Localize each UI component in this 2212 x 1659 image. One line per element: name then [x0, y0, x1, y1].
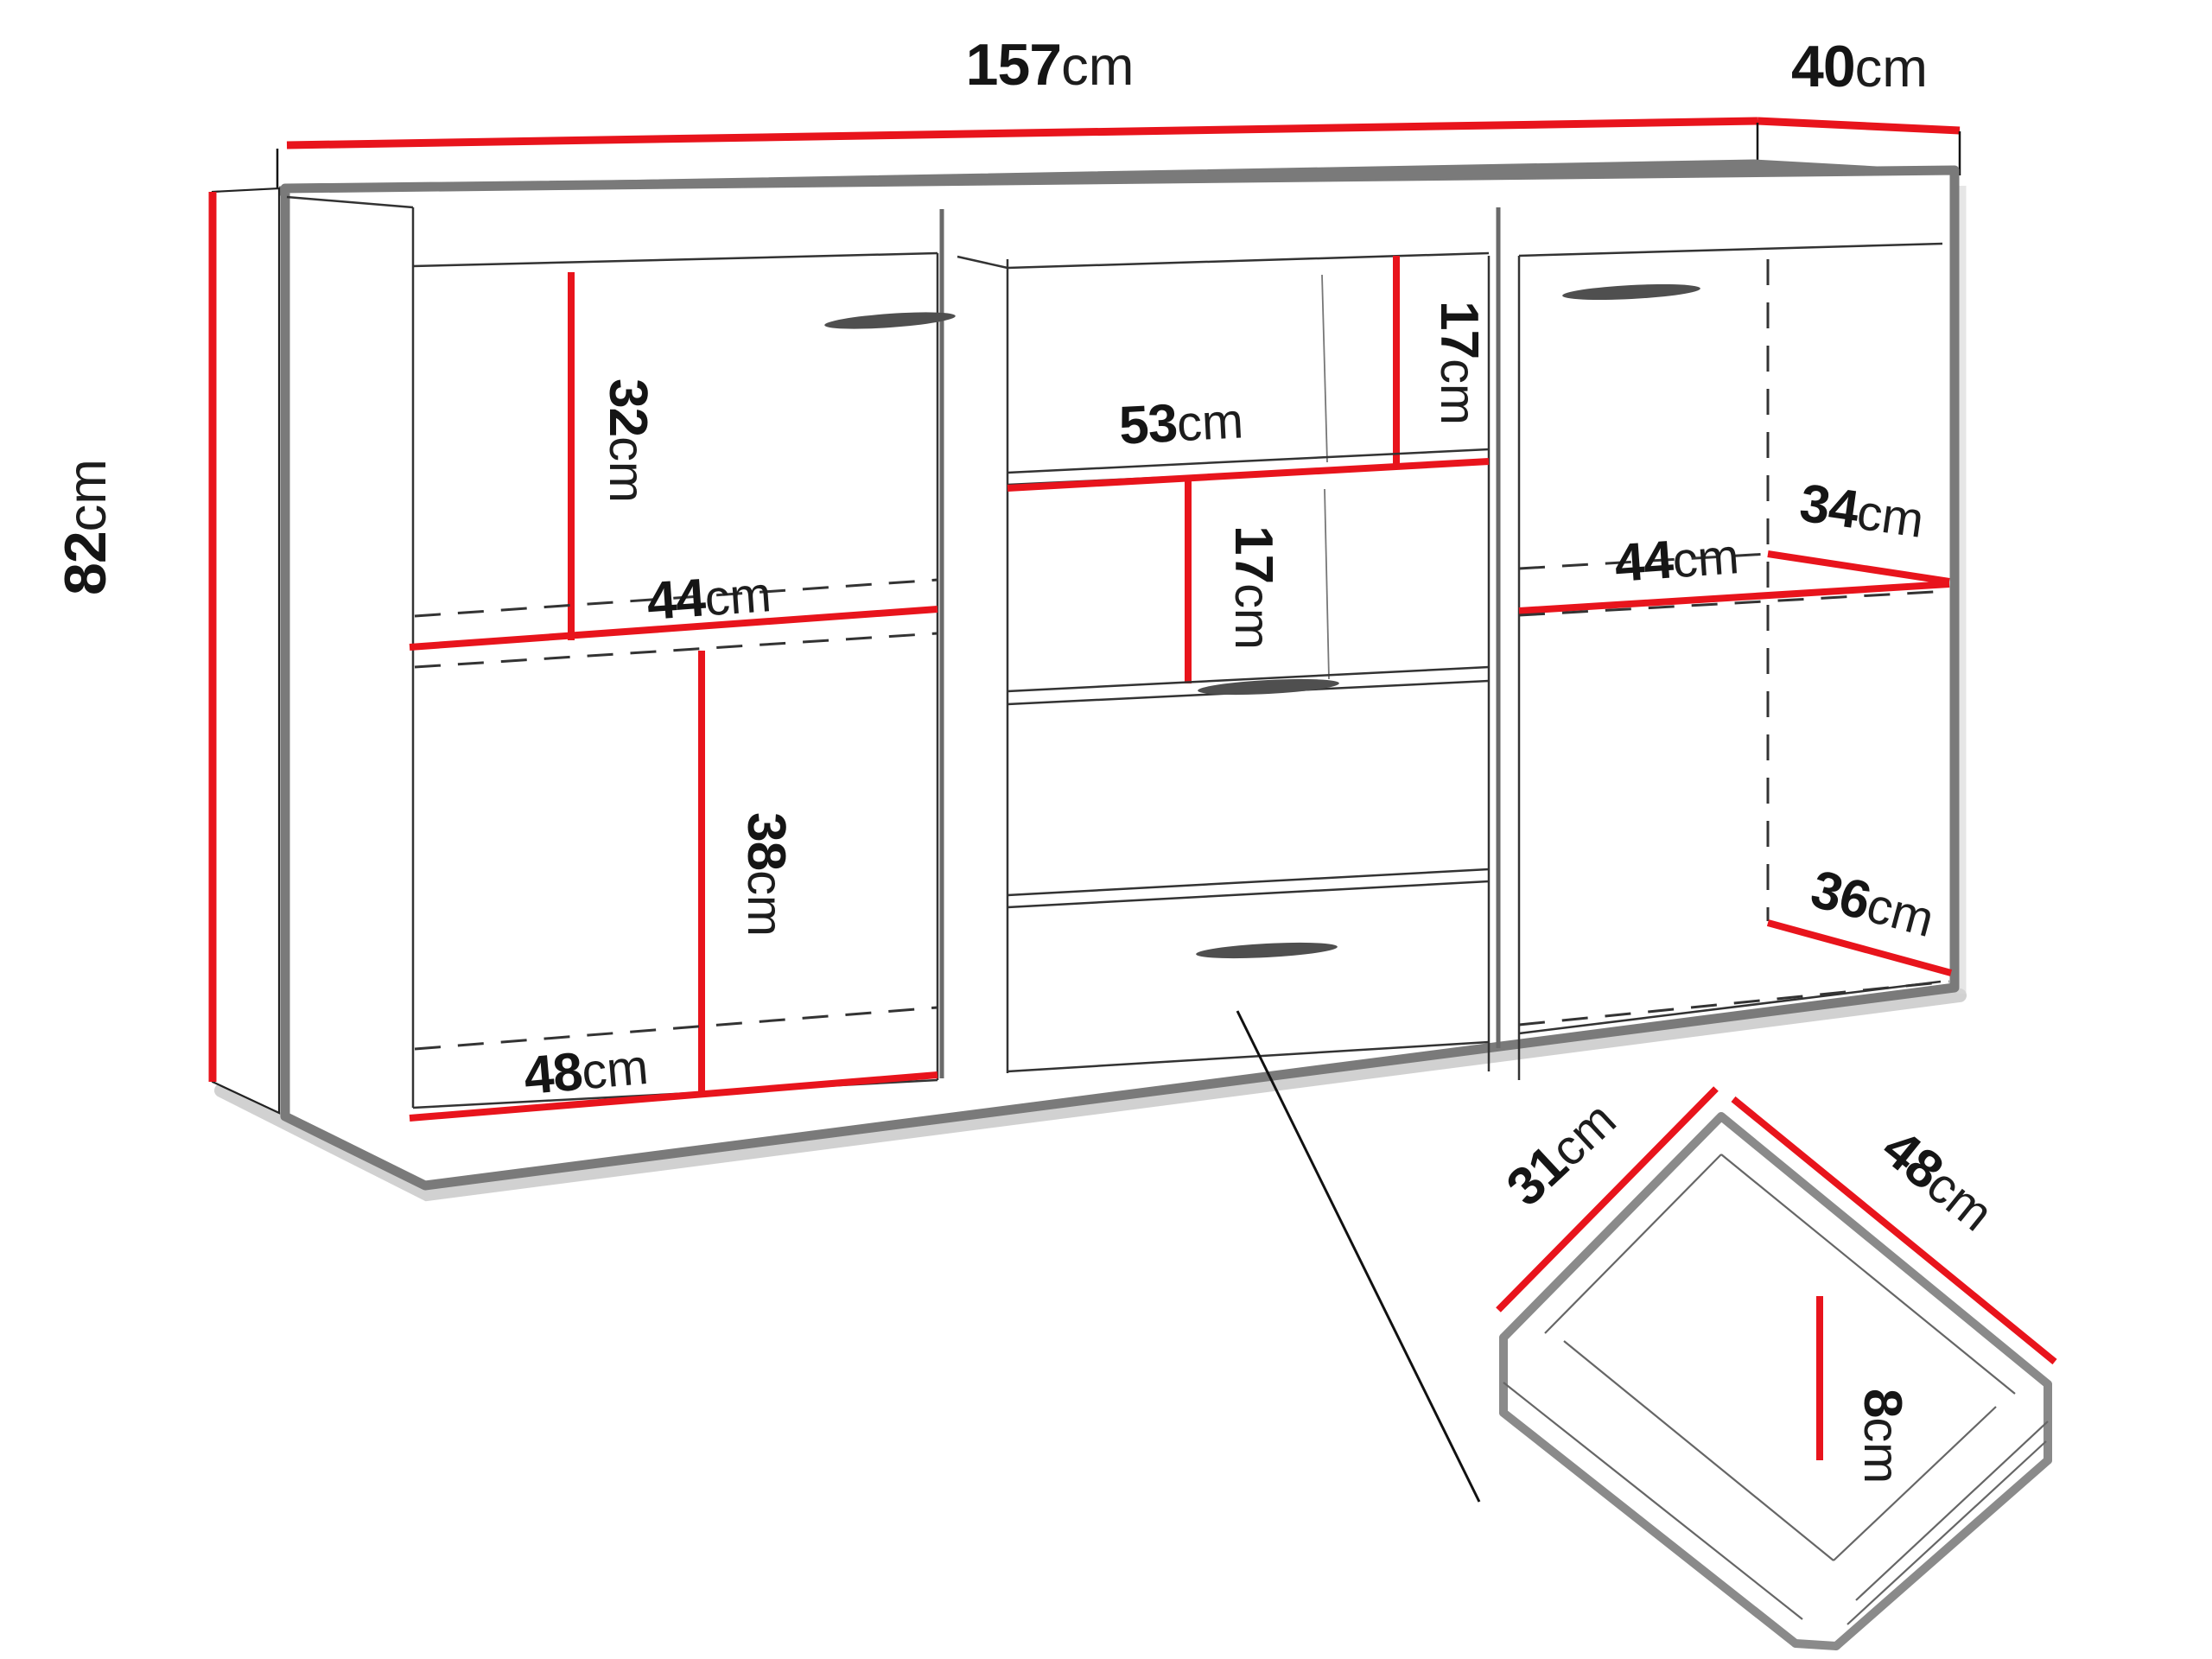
dim-left-lower-width-label: 48cm: [522, 1036, 651, 1106]
drawer-pointer-line: [1237, 1011, 1479, 1502]
dim-left-width-label: 44cm: [645, 563, 772, 632]
dim-left-upper-height-label: 32cm: [598, 378, 658, 503]
dim-total-width-label: 157cm: [966, 32, 1135, 98]
diagram-stage: 157cm 40cm 82cm 32cm 44cm 38cm 48cm: [0, 0, 2212, 1659]
height-dimension: 82cm: [53, 192, 213, 1082]
dim-total-depth-line: [1758, 121, 1960, 130]
drawer-front-left-bottom: [1503, 1413, 1796, 1643]
left-side-panel: [213, 188, 279, 1113]
dim-total-depth-label: 40cm: [1791, 34, 1928, 99]
drawer-floor-left-edge: [1564, 1341, 1834, 1560]
dim-right-width-label: 44cm: [1612, 525, 1740, 594]
dim-middle-upper-gap-label: 17cm: [1429, 301, 1489, 425]
dim-left-lower-height-label: 38cm: [736, 812, 796, 937]
dim-total-width-line: [287, 121, 1758, 145]
dim-drawer-height-label: 8cm: [1853, 1389, 1912, 1484]
drawer-bottom-tip: [1796, 1643, 1836, 1646]
dim-middle-shelf-width-label: 53cm: [1117, 390, 1244, 455]
drawer-detail: 31cm 48cm 8cm: [1237, 1011, 2055, 1646]
drawer-front-left-seam: [1503, 1382, 1802, 1619]
drawer-front-right-bottom: [1836, 1460, 2048, 1646]
dim-middle-lower-gap-label: 17cm: [1224, 525, 1283, 650]
dim-total-height-label: 82cm: [53, 459, 118, 595]
sideboard-dimension-drawing: 157cm 40cm 82cm 32cm 44cm 38cm 48cm: [0, 0, 2212, 1659]
